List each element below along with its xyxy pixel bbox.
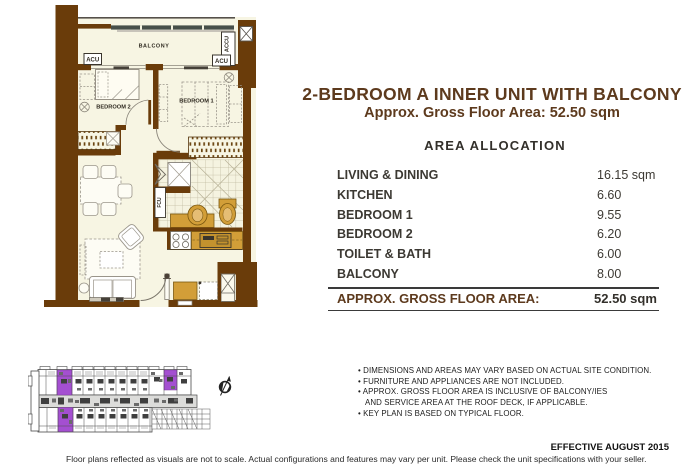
svg-text:ACCU: ACCU <box>225 36 231 52</box>
svg-text:ACU: ACU <box>86 58 99 64</box>
svg-text:ACU: ACU <box>215 59 228 65</box>
svg-text:BEDROOM 2: BEDROOM 2 <box>96 105 130 111</box>
svg-text:BEDROOM 1: BEDROOM 1 <box>179 98 213 104</box>
svg-text:BALCONY: BALCONY <box>139 44 170 50</box>
svg-text:FCU: FCU <box>157 197 163 208</box>
